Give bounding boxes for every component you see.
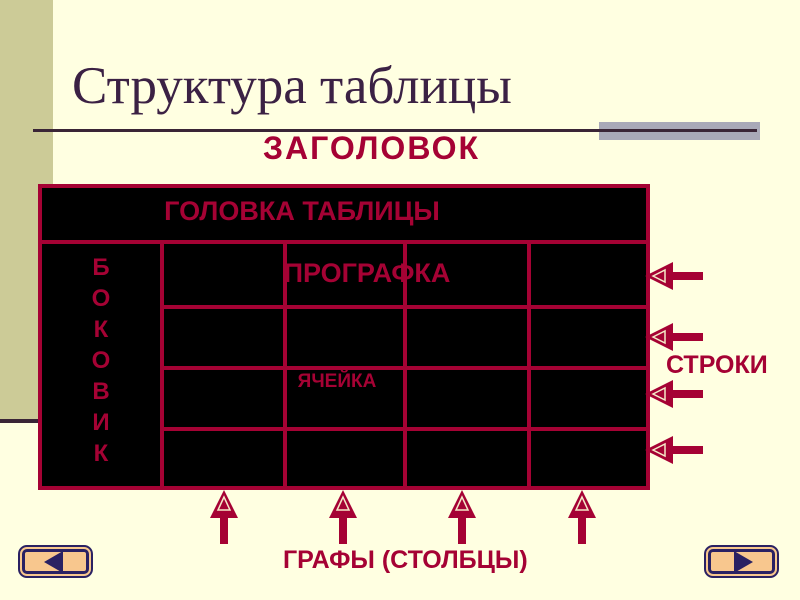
prografka-label: ПРОГРАФКА — [252, 258, 482, 289]
table-head-label: ГОЛОВКА ТАБЛИЦЫ — [42, 196, 562, 227]
slide-title: Структура таблицы — [72, 60, 512, 112]
arrow-left-icon — [645, 322, 703, 352]
grid-line — [527, 240, 531, 486]
arrow-up-icon — [328, 490, 358, 544]
arrow-up-icon — [567, 490, 597, 544]
grid-line — [160, 240, 164, 486]
triangle-left-icon — [44, 551, 63, 573]
table-structure-diagram: ГОЛОВКА ТАБЛИЦЫ БОКОВИК ПРОГРАФКА ЯЧЕЙКА — [38, 184, 650, 490]
arrow-up-icon — [209, 490, 239, 544]
side-column-label: БОКОВИК — [86, 252, 116, 469]
arrow-left-icon — [645, 435, 703, 465]
cell-label: ЯЧЕЙКА — [287, 371, 387, 393]
nav-back-button-frame — [22, 549, 89, 574]
nav-forward-button[interactable] — [704, 545, 779, 578]
columns-label: ГРАФЫ (СТОЛБЦЫ) — [283, 546, 528, 575]
grid-line — [160, 305, 646, 309]
triangle-right-icon — [734, 551, 753, 573]
grid-line — [160, 427, 646, 431]
nav-back-button[interactable] — [18, 545, 93, 578]
slide: Структура таблицы ЗАГОЛОВОК ГОЛОВКА ТАБЛ… — [0, 0, 800, 600]
arrow-up-icon — [447, 490, 477, 544]
grid-line — [160, 366, 646, 370]
grid-line — [42, 240, 646, 244]
arrow-left-icon — [645, 379, 703, 409]
arrow-left-icon — [645, 261, 703, 291]
table-header-label: ЗАГОЛОВОК — [263, 130, 480, 167]
rows-label: СТРОКИ — [666, 351, 768, 380]
nav-forward-button-frame — [708, 549, 775, 574]
